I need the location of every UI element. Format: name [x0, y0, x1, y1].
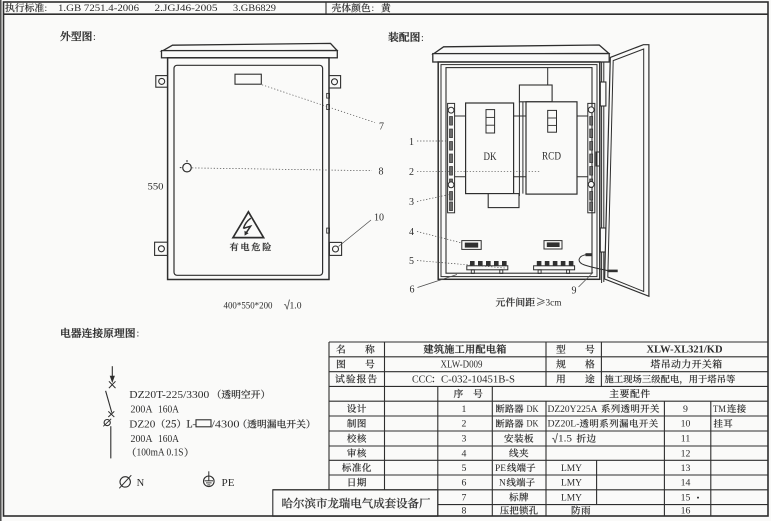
svg-text::: : [137, 329, 140, 340]
svg-text:DZ20Y225A: DZ20Y225A [548, 405, 598, 415]
svg-text:DK: DK [527, 404, 539, 414]
svg-text:2: 2 [462, 419, 467, 430]
svg-text:400*550*200: 400*550*200 [224, 300, 273, 311]
svg-text:13: 13 [681, 463, 691, 474]
svg-text:LMY: LMY [561, 479, 582, 489]
svg-text:CCC: CCC [412, 374, 432, 385]
svg-text:3: 3 [462, 434, 467, 445]
svg-text:2: 2 [409, 167, 414, 178]
svg-text:5: 5 [409, 256, 414, 267]
svg-text:14: 14 [681, 478, 691, 489]
svg-text:DZ20L-: DZ20L- [548, 420, 580, 430]
svg-text:7: 7 [462, 492, 467, 503]
svg-text:9: 9 [683, 404, 688, 415]
svg-text:200A: 200A [131, 405, 154, 416]
svg-text:XLW-XL321/KD: XLW-XL321/KD [647, 344, 723, 356]
svg-text:C-032-10451B-S: C-032-10451B-S [441, 374, 515, 385]
svg-text::: : [421, 33, 424, 44]
svg-text:4: 4 [462, 448, 467, 459]
svg-text:DK: DK [484, 151, 498, 163]
svg-text:DZ20: DZ20 [129, 419, 155, 430]
svg-text:PE: PE [495, 464, 506, 474]
svg-text:8: 8 [379, 167, 384, 178]
svg-text:RCD: RCD [542, 151, 561, 163]
svg-text:10: 10 [681, 419, 691, 430]
svg-text::: : [45, 4, 48, 14]
svg-text:160A: 160A [158, 405, 180, 416]
svg-text:16: 16 [681, 506, 691, 517]
svg-text:1.5: 1.5 [558, 435, 572, 445]
svg-text:160A: 160A [158, 434, 180, 445]
svg-text:12: 12 [681, 448, 691, 459]
svg-text:6: 6 [462, 478, 467, 489]
svg-text:N: N [499, 479, 506, 489]
svg-text:2.JGJ46-2005: 2.JGJ46-2005 [155, 3, 218, 14]
svg-text::: : [372, 4, 375, 14]
svg-text:1.0: 1.0 [290, 300, 302, 311]
svg-text:200A: 200A [131, 434, 154, 445]
svg-text:8: 8 [462, 506, 467, 517]
svg-text:XLW-D009: XLW-D009 [441, 359, 483, 370]
svg-text:15: 15 [681, 492, 691, 503]
svg-text:1.GB 7251.4-2006: 1.GB 7251.4-2006 [58, 3, 139, 14]
svg-text:11: 11 [681, 434, 691, 445]
svg-text:7: 7 [379, 121, 384, 132]
svg-text:1: 1 [462, 404, 467, 415]
svg-text:PE: PE [222, 478, 235, 489]
svg-text:3cm: 3cm [546, 298, 562, 309]
svg-text:6: 6 [410, 285, 415, 296]
svg-text:100mA 0.1S: 100mA 0.1S [137, 448, 184, 459]
svg-text:4: 4 [409, 227, 414, 238]
svg-text:5: 5 [462, 463, 467, 474]
svg-text:DZ20T-225/3300: DZ20T-225/3300 [129, 390, 209, 401]
svg-text:/4300: /4300 [212, 419, 240, 430]
svg-text:3.GB6829: 3.GB6829 [233, 3, 276, 14]
svg-text:DK: DK [527, 419, 539, 429]
svg-text::: : [93, 32, 96, 43]
svg-text:3: 3 [409, 197, 414, 208]
svg-text:N: N [137, 478, 145, 489]
svg-text:TM: TM [713, 405, 727, 415]
svg-text:1: 1 [409, 137, 414, 148]
svg-text:LMY: LMY [561, 464, 582, 474]
svg-text:10: 10 [374, 213, 384, 224]
svg-text:9: 9 [572, 286, 577, 297]
svg-text:550: 550 [148, 183, 164, 193]
svg-text:LMY: LMY [561, 493, 582, 503]
